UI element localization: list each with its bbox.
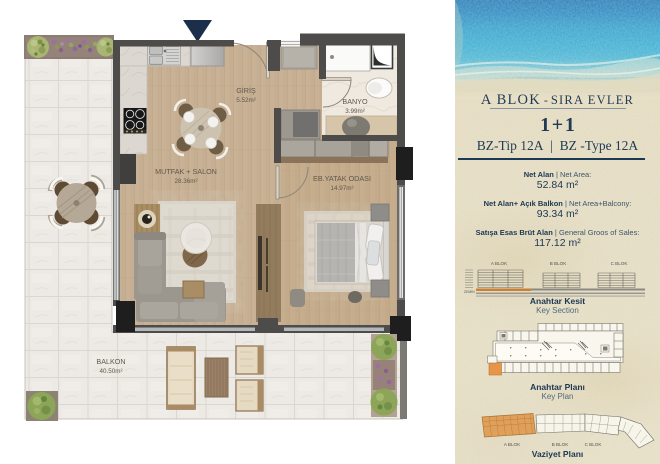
- svg-text:A BLOK: A BLOK: [491, 261, 508, 266]
- svg-text:BALKON: BALKON: [96, 357, 125, 366]
- svg-text:C BLOK: C BLOK: [585, 442, 603, 447]
- svg-text:14.97m²: 14.97m²: [330, 185, 353, 192]
- svg-text:BANYO: BANYO: [342, 97, 368, 106]
- svg-text:3.99m²: 3.99m²: [345, 108, 365, 115]
- svg-text:28.36m²: 28.36m²: [174, 178, 197, 185]
- svg-text:B BLOK: B BLOK: [550, 261, 568, 266]
- svg-text:C BLOK: C BLOK: [611, 261, 629, 266]
- svg-text:B BLOK: B BLOK: [552, 442, 570, 447]
- svg-text:ZEMİN: ZEMİN: [464, 289, 475, 294]
- svg-text:A BLOK: A BLOK: [504, 442, 521, 447]
- svg-text:MUTFAK + SALON: MUTFAK + SALON: [155, 167, 217, 176]
- svg-text:EB.YATAK ODASI: EB.YATAK ODASI: [313, 174, 371, 183]
- svg-text:5.52m²: 5.52m²: [236, 97, 256, 104]
- svg-text:GİRİŞ: GİRİŞ: [236, 86, 256, 95]
- svg-text:40.50m²: 40.50m²: [99, 368, 122, 375]
